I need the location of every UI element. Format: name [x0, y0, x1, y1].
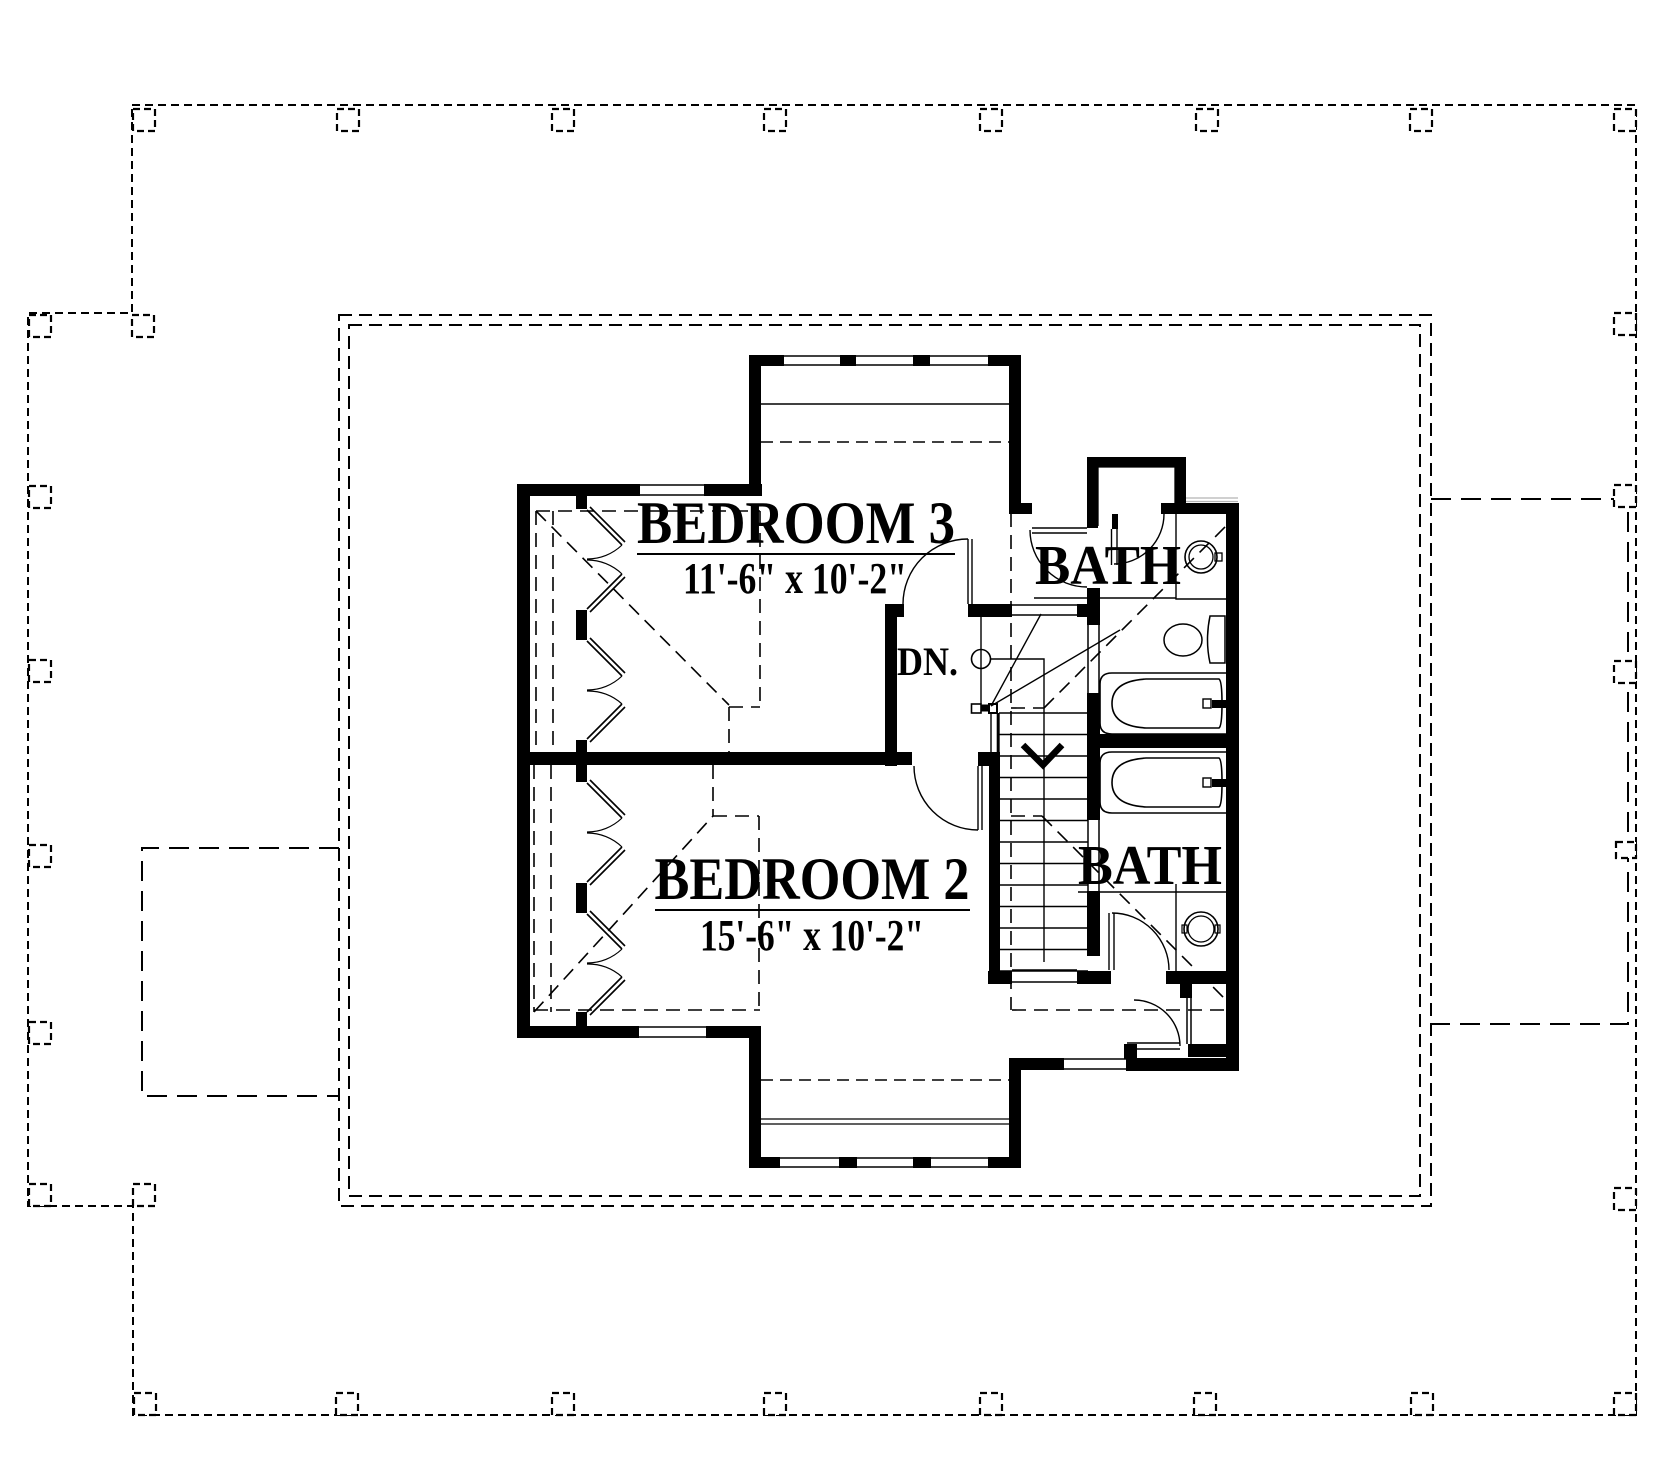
- svg-text:BEDROOM 2: BEDROOM 2: [655, 846, 970, 912]
- svg-text:BEDROOM 3: BEDROOM 3: [637, 490, 955, 556]
- svg-text:11'-6" x 10'-2": 11'-6" x 10'-2": [683, 554, 907, 603]
- svg-text:DN.: DN.: [897, 639, 958, 684]
- svg-text:15'-6" x 10'-2": 15'-6" x 10'-2": [700, 911, 924, 960]
- svg-text:BATH: BATH: [1078, 835, 1222, 897]
- svg-text:BATH: BATH: [1035, 535, 1181, 597]
